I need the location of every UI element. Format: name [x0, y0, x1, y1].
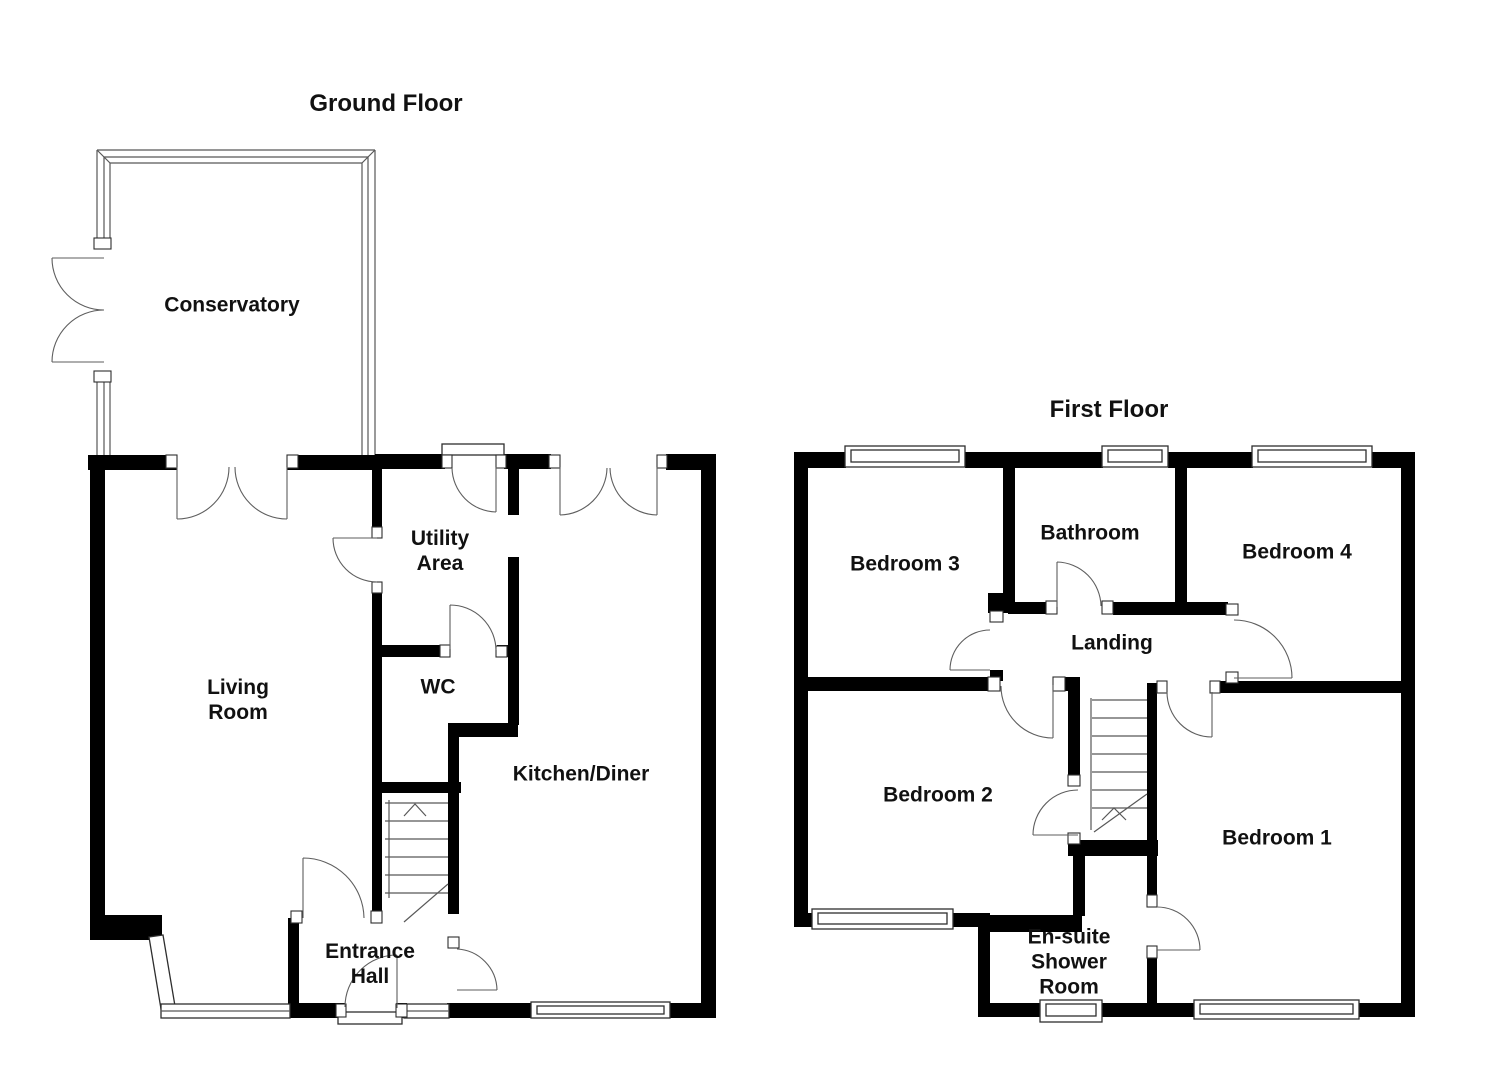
back-door-recess: [442, 444, 504, 455]
room-label-bedroom-1: Bedroom 1: [1222, 826, 1332, 851]
room-label-living-room: LivingRoom: [207, 675, 269, 725]
room-label-bathroom: Bathroom: [1040, 521, 1139, 546]
bathroom-door: [1057, 562, 1101, 607]
bedroom2-door: [1001, 685, 1053, 738]
living-utility-door: [333, 538, 377, 582]
wc-door: [450, 605, 496, 650]
bedroom4-door: [1234, 620, 1292, 678]
conservatory-door-top: [52, 258, 104, 310]
room-label-ensuite-shower-room: En-suiteShowerRoom: [1028, 925, 1111, 1000]
living-french-door-right: [235, 467, 287, 519]
room-label-bedroom-4: Bedroom 4: [1242, 540, 1352, 565]
ground-floor-plan: [52, 150, 716, 1024]
ground-walls: [88, 454, 716, 1018]
room-label-kitchen-diner: Kitchen/Diner: [513, 762, 650, 787]
bay-window-side: [149, 935, 175, 1009]
living-hall-door: [303, 858, 364, 918]
room-label-utility-area: UtilityArea: [411, 526, 469, 576]
room-label-bedroom-3: Bedroom 3: [850, 552, 960, 577]
room-label-landing: Landing: [1071, 631, 1153, 656]
room-label-bedroom-2: Bedroom 2: [883, 783, 993, 808]
floorplan-canvas: Ground Floor First Floor Conservatory Li…: [0, 0, 1485, 1080]
bedroom3-door: [950, 630, 990, 670]
ground-floor-title: Ground Floor: [309, 91, 462, 117]
bedroom1-door: [1167, 692, 1212, 737]
utility-back-door: [452, 467, 496, 512]
kitchen-french-door-left: [560, 467, 607, 515]
front-door-recess: [338, 1012, 402, 1024]
conservatory-door-bottom: [52, 310, 104, 362]
living-french-door-left: [177, 467, 229, 519]
kitchen-french-door-right: [610, 467, 657, 515]
ensuite-door: [1157, 907, 1200, 950]
room-label-wc: WC: [421, 675, 456, 700]
ground-windows: [149, 444, 670, 1024]
room-label-entrance-hall: EntranceHall: [325, 939, 415, 989]
staircase-ground: [385, 800, 448, 922]
room-label-conservatory: Conservatory: [164, 293, 299, 318]
ground-doors: [52, 258, 657, 1008]
first-floor-title: First Floor: [1050, 397, 1169, 423]
stair-direction-arrow: [404, 804, 426, 816]
hall-kitchen-door: [457, 949, 497, 990]
cupboard-door: [1033, 790, 1078, 835]
staircase-first: [1091, 698, 1147, 832]
